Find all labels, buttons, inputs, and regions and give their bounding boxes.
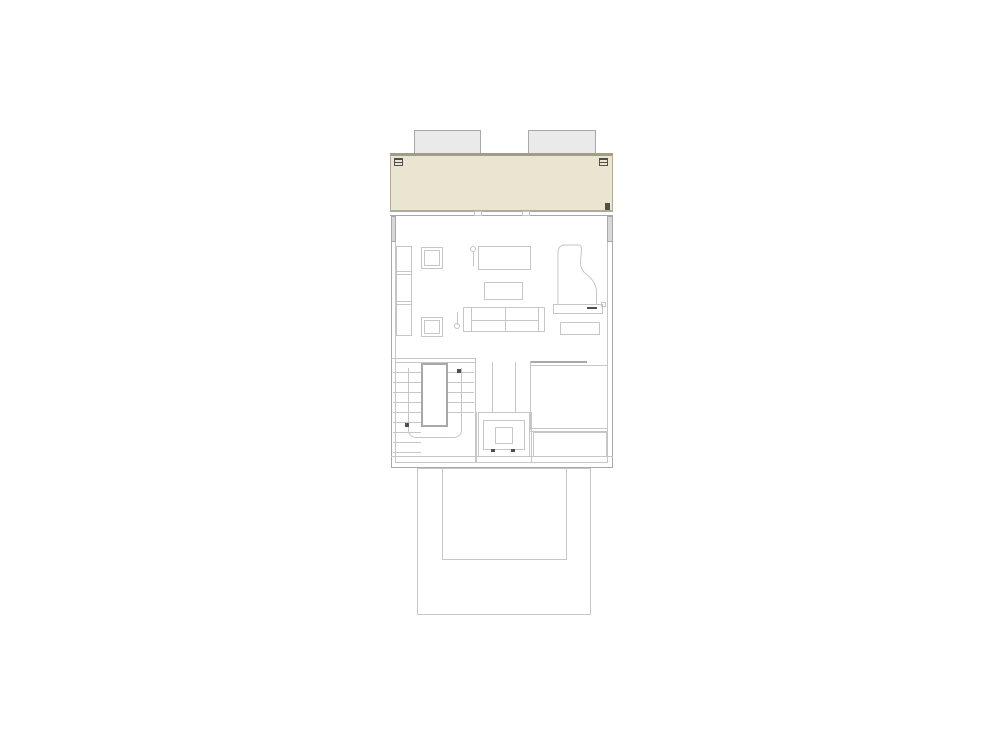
piano-bench [560,322,600,335]
sideboard [478,246,531,270]
room-top-line [530,365,608,366]
chimney-wall-left [492,362,493,413]
stair-top-line-1 [391,358,475,359]
grand-piano-body [551,242,603,308]
fireplace-mark-1 [491,449,495,452]
stair-walk-mark-2 [457,369,461,373]
chimney-wall-right [515,362,516,413]
wall-segment-right [607,216,613,242]
side-table-lower [421,317,443,337]
partition-wall-dark [530,361,587,363]
side-table-upper [421,247,443,269]
floor-lamp-icon-2 [454,323,460,329]
wall-segment-left [391,216,396,242]
wall-shelf [396,246,412,336]
bottom-interior-line [391,456,613,457]
terrace-vent-left-icon [394,158,403,166]
skylight-left-shape [414,130,481,154]
terrace-corner-block [605,203,610,210]
fireplace-mark-2 [511,449,515,452]
floor-lamp-stem-1 [473,251,474,266]
piano-keyboard-corner [601,302,606,307]
lower-terrace-inner [442,468,567,560]
piano-keyboard-detail [587,307,597,309]
stair-walk-mark-1 [405,423,409,427]
roof-terrace-area [390,153,613,211]
skylight-right-shape [528,130,596,154]
piano-keyboard [553,304,603,314]
floor-plan [0,0,1000,750]
fireplace-inner [495,427,513,444]
floor-lamp-icon-1 [470,246,476,252]
closet-strip [533,432,607,457]
stair-walk-line [408,368,462,438]
coffee-table [484,282,523,300]
sofa [463,307,545,332]
terrace-vent-right-icon [599,158,608,166]
